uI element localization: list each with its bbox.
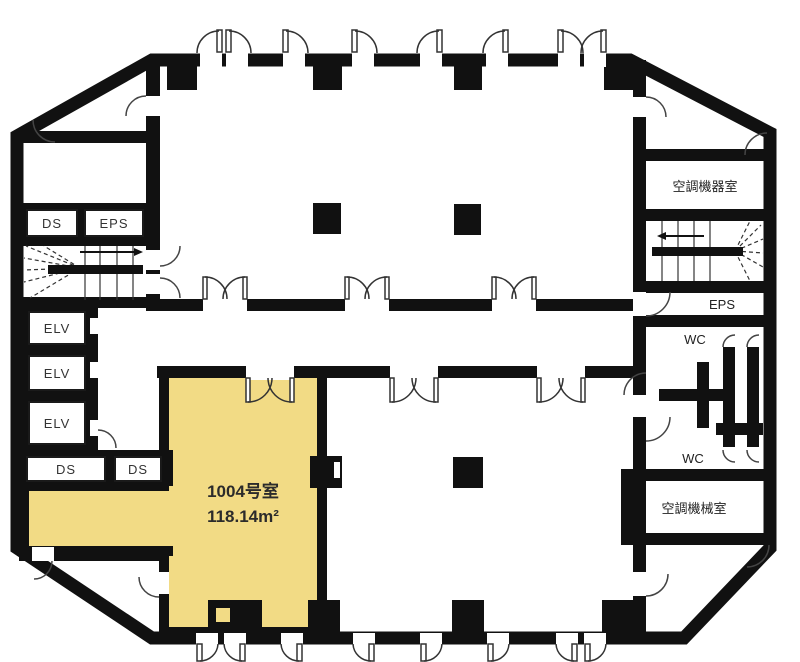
ac-machine-room-label: 空調機械室 [628, 494, 760, 520]
elevator-3-label: ELV [28, 401, 86, 445]
ds-shaft-label-top: DS [26, 209, 78, 237]
eps-shaft-label-top: EPS [84, 209, 144, 237]
ds-shaft-label-left-b: DS [114, 456, 162, 482]
elevator-1-label: ELV [28, 311, 86, 345]
floor-plan: DS EPS ELV ELV ELV DS DS 1004号室 118.14m²… [0, 0, 800, 662]
wc-upper-label: WC [660, 328, 730, 350]
ds-shaft-label-left-a: DS [26, 456, 106, 482]
ac-equipment-room-label: 空調機器室 [646, 172, 764, 198]
room-1004-name: 1004号室 [164, 476, 322, 502]
room-1004-area: 118.14m² [164, 504, 322, 530]
wc-lower-label: WC [658, 447, 728, 469]
elevator-2-label: ELV [28, 355, 86, 391]
eps-shaft-label-right: EPS [672, 293, 772, 315]
